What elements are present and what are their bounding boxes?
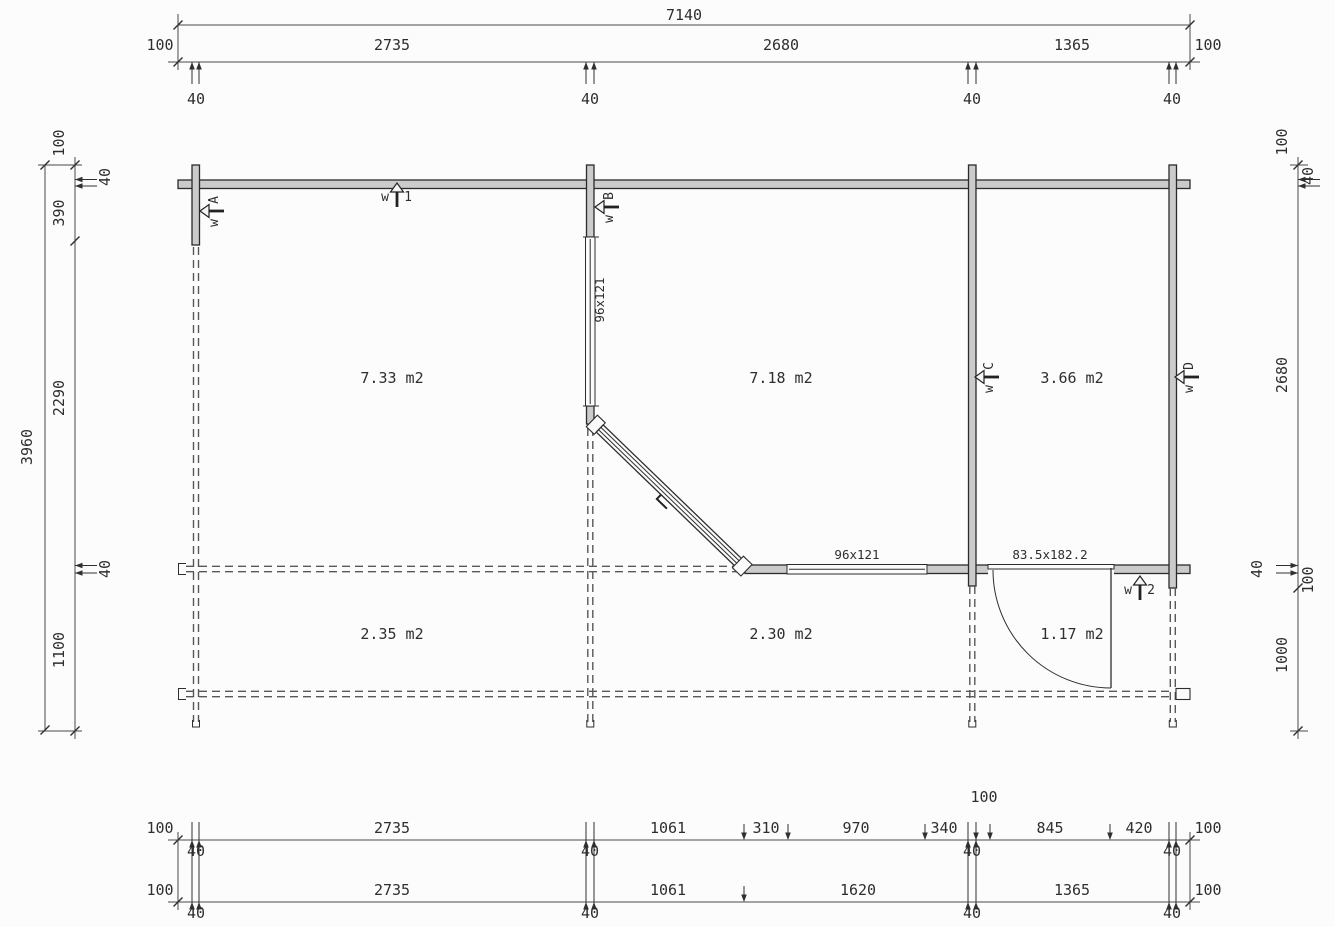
marker-id: A	[207, 196, 222, 204]
opening-labels: 96x121 96x121 83.5x182.2	[592, 277, 1088, 562]
dim-left: 3960 100 40 390 2290 40 1100	[18, 129, 114, 739]
dim-label: 100	[1299, 566, 1317, 593]
marker-id: B	[602, 192, 617, 200]
wall-top	[178, 180, 1190, 189]
marker-prefix: w	[1124, 583, 1132, 598]
marker-id: 1	[404, 190, 412, 205]
dim-bottom-wall-arrows	[189, 840, 1179, 910]
up-arrow-icon	[1134, 576, 1147, 585]
dim-label-40: 40	[187, 90, 205, 108]
dim-label-40: 40	[96, 560, 114, 578]
dim-label-40: 40	[963, 842, 981, 860]
room-area-label: 7.18 m2	[749, 369, 812, 387]
dim-label: 100	[1194, 819, 1221, 837]
front-door-size: 83.5x182.2	[1012, 547, 1087, 562]
room-area-label: 1.17 m2	[1040, 625, 1103, 643]
dim-label: 100	[1194, 881, 1221, 899]
dim-top-overall: 7140	[666, 6, 702, 24]
dim-label-40: 40	[963, 904, 981, 922]
dim-label: 2680	[1273, 357, 1291, 393]
wall-left-a	[192, 165, 200, 245]
left-arrow-icon	[200, 205, 209, 218]
up-arrow-icon	[595, 201, 604, 214]
dashed-lines	[179, 247, 1191, 727]
dim-label: 970	[842, 819, 869, 837]
marker-id: D	[1182, 362, 1197, 370]
room-area-label: 3.66 m2	[1040, 369, 1103, 387]
marker-w2: w 2	[1124, 576, 1155, 600]
dim-label: 1061	[650, 881, 686, 899]
wall-b-upper	[587, 165, 595, 237]
marker-wb: w B	[595, 192, 619, 223]
dim-label: 340	[930, 819, 957, 837]
marker-prefix: w	[1182, 385, 1197, 393]
marker-wa: w A	[200, 196, 224, 227]
dim-label-40: 40	[1163, 842, 1181, 860]
marker-prefix: w	[982, 385, 997, 393]
dim-label: 100	[146, 881, 173, 899]
dim-label: 1000	[1273, 637, 1291, 673]
dim-label-40: 40	[1248, 560, 1266, 578]
dim-label: 100	[1194, 36, 1221, 54]
marker-prefix: w	[381, 190, 389, 205]
floor-plan-drawing: 7140 100 2735 2680 1365 100 40 40 40 40 …	[0, 0, 1335, 927]
dim-label-40: 40	[581, 904, 599, 922]
dim-label-40: 40	[1163, 90, 1181, 108]
diagonal-door	[584, 415, 752, 578]
marker-prefix: w	[207, 219, 222, 227]
dim-label: 2735	[374, 881, 410, 899]
dim-label: 2680	[763, 36, 799, 54]
dim-label-40: 40	[581, 842, 599, 860]
dim-label: 2735	[374, 36, 410, 54]
front-window-size: 96x121	[834, 547, 879, 562]
dim-label: 2735	[374, 819, 410, 837]
dim-label: 1620	[840, 881, 876, 899]
dim-label-40: 40	[1163, 904, 1181, 922]
room-labels: 7.33 m2 7.18 m2 3.66 m2 2.35 m2 2.30 m2 …	[360, 369, 1103, 643]
dim-label-40: 40	[963, 90, 981, 108]
dim-bottom: 100 2735 1061 310 970 340 845 420 100 10…	[146, 788, 1221, 922]
dim-label: 845	[1036, 819, 1063, 837]
marker-id: 2	[1147, 583, 1155, 598]
marker-prefix: w	[602, 215, 617, 223]
wall-c	[969, 165, 977, 586]
room-area-label: 2.35 m2	[360, 625, 423, 643]
dim-left-overall: 3960	[18, 429, 36, 465]
dim-label-40: 40	[1299, 167, 1317, 185]
dim-label: 1365	[1054, 881, 1090, 899]
marker-wc: w C	[975, 362, 999, 393]
dim-top: 7140 100 2735 2680 1365 100 40 40 40 40	[146, 6, 1221, 108]
dim-label-above: 100	[970, 788, 997, 806]
front-door-head	[988, 565, 1114, 570]
dim-label: 420	[1125, 819, 1152, 837]
room-area-label: 7.33 m2	[360, 369, 423, 387]
dim-label: 100	[146, 819, 173, 837]
dim-label-40: 40	[581, 90, 599, 108]
floor-plan-canvas: 7140 100 2735 2680 1365 100 40 40 40 40 …	[0, 0, 1335, 927]
marker-wd: w D	[1175, 362, 1199, 393]
room-area-label: 2.30 m2	[749, 625, 812, 643]
dim-label: 1100	[50, 632, 68, 668]
dim-label: 390	[50, 199, 68, 226]
dim-label: 1365	[1054, 36, 1090, 54]
dim-right: 100 40 2680 40 100 1000	[1248, 128, 1320, 739]
dim-label: 1061	[650, 819, 686, 837]
dim-label-40: 40	[187, 842, 205, 860]
dim-top-wall-arrows	[189, 62, 1179, 70]
dim-label: 2290	[50, 380, 68, 416]
wall-b-window-size: 96x121	[592, 277, 607, 322]
dim-label-40: 40	[96, 168, 114, 186]
dim-label: 100	[50, 129, 68, 156]
dim-label: 310	[752, 819, 779, 837]
dim-top-wall-ticks	[192, 62, 1176, 84]
marker-id: C	[982, 362, 997, 370]
dim-label: 100	[146, 36, 173, 54]
dim-label-40: 40	[187, 904, 205, 922]
dim-label: 100	[1273, 128, 1291, 155]
walls	[178, 165, 1190, 588]
